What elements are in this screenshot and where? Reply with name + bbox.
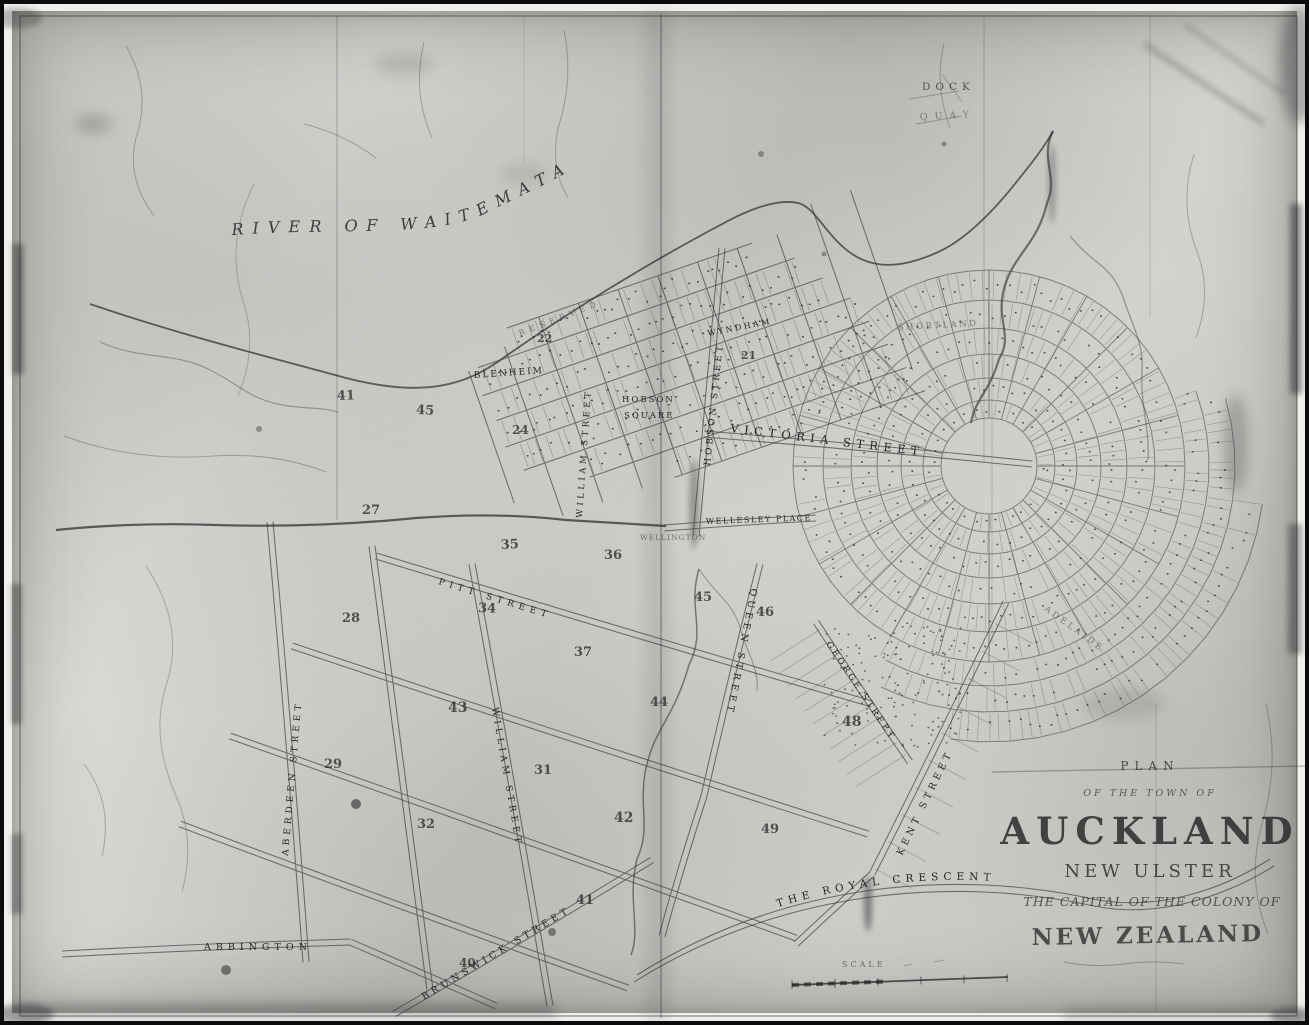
- coastline-and-streams: [64, 74, 1148, 955]
- block-number: 41: [337, 388, 356, 404]
- block-number: 48: [842, 714, 861, 730]
- title-block: PLAN OF THE TOWN OF AUCKLAND NEW ULSTER …: [999, 759, 1299, 966]
- auckland-town-plan-map: BLENHEIM WILLIAM STREET HOBSON STREET WY…: [4, 4, 1309, 1025]
- label-wellington: WELLINGTON: [640, 533, 706, 542]
- street-label-shortland: SHORTLAND: [898, 319, 979, 333]
- block-number: 46: [756, 605, 774, 620]
- block-number: 45: [694, 590, 712, 605]
- street-label-blenheim: BLENHEIM: [474, 366, 545, 381]
- street-label-wellesley-place: WELLESLEY PLACE: [706, 513, 812, 526]
- scanned-map-page: BLENHEIM WILLIAM STREET HOBSON STREET WY…: [0, 0, 1309, 1025]
- label-reserved: RESERVED: [517, 298, 601, 338]
- block-number: 35: [500, 537, 519, 553]
- block-number: 32: [417, 817, 435, 832]
- street-label-queen: QUEEN STREET: [723, 587, 758, 716]
- block-number: 28: [342, 611, 360, 626]
- block-number: 49: [761, 822, 779, 837]
- block-number: 29: [324, 757, 342, 772]
- block-number: 41: [576, 893, 594, 908]
- street-label-adelaide: ADELAIDE: [1041, 604, 1105, 655]
- title-new-ulster: NEW ULSTER: [1064, 861, 1235, 882]
- street-label-abbington: ABBINGTON: [203, 942, 312, 953]
- street-label-william-north: WILLIAM STREET: [575, 389, 594, 519]
- block-number: 40: [459, 956, 476, 970]
- crescent-text-path: [652, 880, 1098, 966]
- label-hobson-square-1: HOBSON: [622, 395, 675, 405]
- royal-crescent-text: THE ROYAL CRESCENT: [775, 871, 996, 910]
- title-imprint-squiggle: [1064, 962, 1184, 966]
- street-label-victoria: VICTORIA STREET: [729, 421, 925, 459]
- title-of-the-town-of: OF THE TOWN OF: [1083, 788, 1217, 799]
- title-plan: PLAN: [1120, 759, 1179, 773]
- scale-bar: SCALE: [792, 960, 1008, 989]
- block-number: 45: [416, 403, 435, 419]
- scale-bar-line: [792, 977, 1008, 985]
- title-new-zealand: NEW ZEALAND: [1031, 920, 1264, 951]
- block-number: 21: [741, 349, 756, 362]
- scale-bar-marks: [904, 960, 944, 966]
- quay-label: QUAY: [920, 109, 977, 123]
- street-label-royal-crescent: THE ROYAL CRESCENT: [775, 871, 996, 910]
- block-number: 36: [604, 548, 622, 563]
- title-city-auckland: AUCKLAND: [999, 809, 1299, 853]
- block-number: 31: [534, 763, 552, 778]
- block-number: 34: [478, 601, 497, 617]
- street-label-hobson: HOBSON STREET: [703, 343, 726, 467]
- label-hobson-square-2: SQUARE: [624, 411, 674, 421]
- title-capital-line: THE CAPITAL OF THE COLONY OF: [1024, 894, 1281, 909]
- block-number: 24: [512, 423, 529, 437]
- street-label-wyndham: WYNDHAM: [707, 317, 773, 338]
- scale-label: SCALE: [842, 960, 886, 969]
- block-number: 44: [650, 695, 668, 710]
- water-labels: RIVER OF WAITEMATA DOCK QUAY: [230, 81, 976, 239]
- block-number: 22: [537, 332, 552, 345]
- block-number: 42: [614, 810, 633, 826]
- block-number: 27: [362, 503, 380, 518]
- block-number: 43: [448, 700, 467, 716]
- dock-label: DOCK: [922, 81, 975, 93]
- block-number: 37: [574, 645, 592, 660]
